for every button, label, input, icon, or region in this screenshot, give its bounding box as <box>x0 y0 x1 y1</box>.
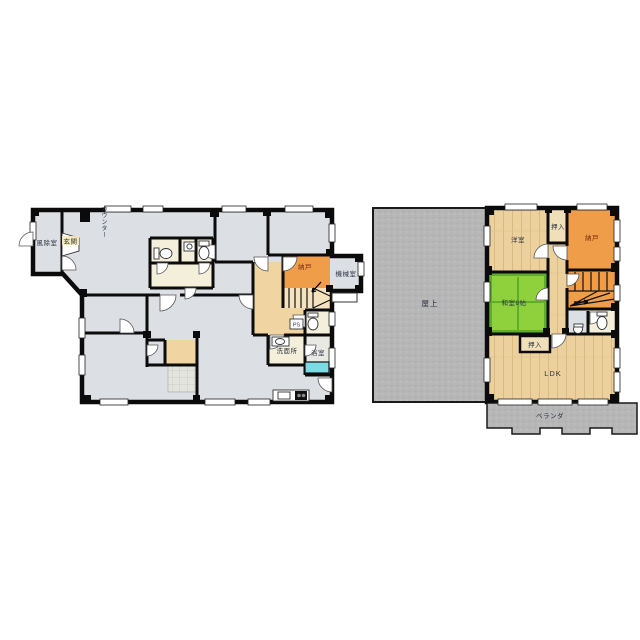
kitchen-counter-icon <box>273 390 309 401</box>
bathtub-icon <box>305 362 329 373</box>
label-closet-top: 押入 <box>551 222 565 231</box>
sink-icon <box>574 324 584 334</box>
label-counter: カウンター <box>100 206 107 239</box>
sink-icon <box>184 242 195 251</box>
label-closet-bottom: 押入 <box>528 340 542 349</box>
vanity-icon <box>272 337 289 346</box>
floor2-plan: 屋上 洋室 押入 納戸 和室8帖 押入 LDK ベランダ <box>373 204 637 434</box>
label-storage-2f: 納戸 <box>585 233 599 242</box>
label-storage-1f: 納戸 <box>298 262 312 271</box>
toilet-icon <box>199 241 209 260</box>
toilet-icon <box>308 313 318 330</box>
mini-hall-floor <box>165 340 197 365</box>
label-washroom: 洗面所 <box>277 346 298 355</box>
label-machine-room: 機械室 <box>336 269 357 278</box>
floorplan-page: 風除室 玄関 カウンター 納戸 機械室 洗面所 浴室 PS <box>0 0 640 640</box>
label-windbreak-room: 風除室 <box>37 238 58 247</box>
label-bathroom: 浴室 <box>311 348 325 357</box>
label-japanese-room: 和室8帖 <box>501 298 526 307</box>
porch-1f <box>332 293 357 302</box>
label-rooftop: 屋上 <box>422 299 439 308</box>
floor1-plan: 風除室 玄関 カウンター 納戸 機械室 洗面所 浴室 PS <box>19 206 364 405</box>
label-ldk: LDK <box>544 369 562 378</box>
label-pipe-space: PS <box>293 323 301 329</box>
label-western-room: 洋室 <box>511 235 525 244</box>
toilet-icon <box>597 312 607 330</box>
tile-room-floor <box>168 365 197 392</box>
floorplan-canvas: 風除室 玄関 カウンター 納戸 機械室 洗面所 浴室 PS <box>0 0 640 640</box>
toilet-icon <box>154 248 172 259</box>
label-veranda: ベランダ <box>536 411 564 420</box>
label-entrance: 玄関 <box>64 237 78 246</box>
